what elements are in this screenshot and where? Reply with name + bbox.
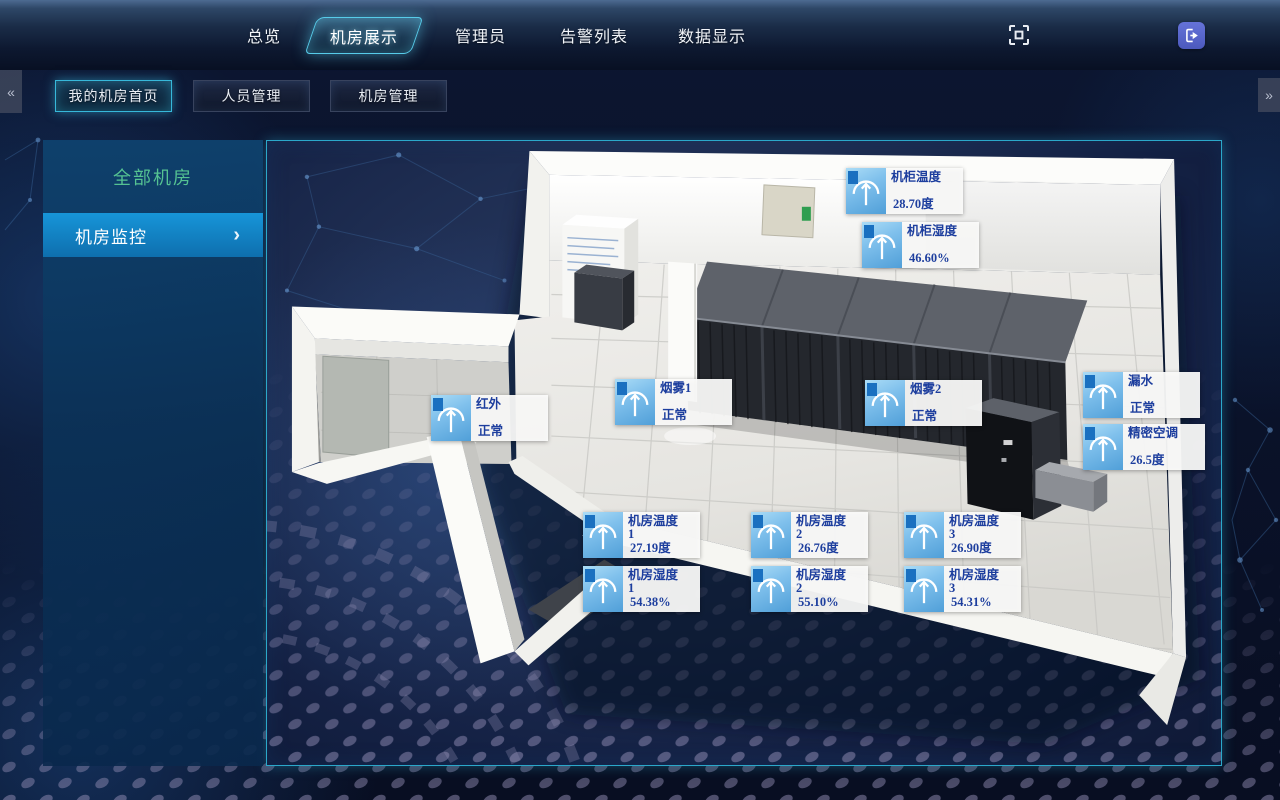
room-3d-viewport[interactable]: 机柜温度 28.70度 机柜湿度 46.60%: [266, 140, 1222, 766]
sensor-value: 正常: [476, 425, 546, 438]
sensor-text: 烟雾2 正常: [905, 380, 982, 426]
sensor-smoke-2[interactable]: 烟雾2 正常: [865, 380, 982, 426]
nav-item-overview[interactable]: 总览: [247, 23, 281, 47]
sensor-room-humidity-3[interactable]: 机房湿度3 54.31%: [904, 566, 1021, 612]
sensor-corner-square: [1085, 375, 1095, 388]
sensor-text: 机房温度1 27.19度: [623, 512, 700, 558]
sensor-value: 27.19度: [628, 542, 698, 555]
sensor-precision-ac[interactable]: 精密空调 26.5度: [1083, 424, 1205, 470]
sensor-name: 机柜湿度: [907, 225, 963, 238]
logout-button[interactable]: [1178, 22, 1205, 49]
sensor-room-humidity-2[interactable]: 机房湿度2 55.10%: [751, 566, 868, 612]
sensor-text: 机柜湿度 46.60%: [902, 222, 979, 268]
sensor-text: 机房湿度2 55.10%: [791, 566, 868, 612]
sensor-corner-square: [753, 515, 763, 528]
nav-item-alarm-list[interactable]: 告警列表: [560, 23, 628, 47]
top-nav: 总览 机房展示 管理员 告警列表 数据显示: [0, 0, 1280, 70]
sensor-corner-square: [433, 398, 443, 411]
sensor-name: 烟雾1: [660, 382, 716, 395]
sensor-name: 机柜温度: [891, 171, 947, 184]
sensor-smoke-1[interactable]: 烟雾1 正常: [615, 379, 732, 425]
sensor-cabinet-humidity[interactable]: 机柜湿度 46.60%: [862, 222, 979, 268]
tab-personnel-mgmt[interactable]: 人员管理: [193, 80, 310, 112]
tab-room-mgmt[interactable]: 机房管理: [330, 80, 447, 112]
sidebar-item-room-monitor[interactable]: 机房监控 ›: [43, 213, 263, 257]
sensor-corner-square: [617, 382, 627, 395]
sensor-name: 漏水: [1128, 375, 1184, 388]
tab-my-room-home[interactable]: 我的机房首页: [55, 80, 172, 112]
sensor-corner-square: [585, 515, 595, 528]
sensor-text: 烟雾1 正常: [655, 379, 732, 425]
sensor-corner-square: [864, 225, 874, 238]
sensor-name: 机房湿度3: [949, 569, 1005, 595]
sensor-corner-square: [753, 569, 763, 582]
sensor-value: 26.5度: [1128, 454, 1203, 467]
sensor-cabinet-temp[interactable]: 机柜温度 28.70度: [846, 168, 963, 214]
nav-item-room-display-label: 机房展示: [330, 23, 398, 47]
sensor-room-humidity-1[interactable]: 机房湿度1 54.38%: [583, 566, 700, 612]
sidebar: 全部机房 机房监控 ›: [43, 140, 263, 766]
fullscreen-icon[interactable]: [1007, 23, 1031, 47]
sensor-text: 红外 正常: [471, 395, 548, 441]
sensor-value: 正常: [910, 410, 980, 423]
sensor-value: 26.90度: [949, 542, 1019, 555]
sensor-text: 机房温度2 26.76度: [791, 512, 868, 558]
sensor-name: 机房湿度1: [628, 569, 684, 595]
sensor-text: 机房湿度3 54.31%: [944, 566, 1021, 612]
sensor-corner-square: [906, 569, 916, 582]
nav-item-room-display[interactable]: 机房展示: [305, 17, 424, 54]
logout-icon: [1182, 26, 1201, 45]
sensor-text: 机房湿度1 54.38%: [623, 566, 700, 612]
sensor-value: 55.10%: [796, 596, 866, 609]
sensor-room-temp-3[interactable]: 机房温度3 26.90度: [904, 512, 1021, 558]
sensor-corner-square: [906, 515, 916, 528]
sensor-corner-square: [848, 171, 858, 184]
sensor-name: 机房湿度2: [796, 569, 852, 595]
sensor-name: 精密空调: [1128, 427, 1184, 440]
sensor-text: 漏水 正常: [1123, 372, 1200, 418]
pager-prev-button[interactable]: «: [0, 70, 22, 113]
sensor-value: 正常: [1128, 402, 1198, 415]
sensor-value: 正常: [660, 409, 730, 422]
sensor-value: 46.60%: [907, 252, 977, 265]
sensor-corner-square: [1085, 427, 1095, 440]
sensor-corner-square: [585, 569, 595, 582]
pager-next-button[interactable]: »: [1258, 78, 1280, 112]
nav-item-data-display[interactable]: 数据显示: [678, 23, 746, 47]
sensor-text: 机柜温度 28.70度: [886, 168, 963, 214]
sidebar-item-label: 机房监控: [75, 223, 147, 248]
sensor-value: 54.38%: [628, 596, 698, 609]
app: 总览 机房展示 管理员 告警列表 数据显示: [0, 0, 1280, 800]
sensor-name: 机房温度2: [796, 515, 852, 541]
nav-right-actions: [1007, 22, 1280, 49]
sensor-water-leak[interactable]: 漏水 正常: [1083, 372, 1200, 418]
nav-item-admin[interactable]: 管理员: [455, 23, 506, 47]
sensor-infrared[interactable]: 红外 正常: [431, 395, 548, 441]
sensor-value: 28.70度: [891, 198, 961, 211]
sensor-value: 26.76度: [796, 542, 866, 555]
sensor-name: 机房温度1: [628, 515, 684, 541]
sensor-room-temp-1[interactable]: 机房温度1 27.19度: [583, 512, 700, 558]
sensor-name: 红外: [476, 398, 532, 411]
sensor-name: 烟雾2: [910, 383, 966, 396]
sensor-value: 54.31%: [949, 596, 1019, 609]
sensor-text: 精密空调 26.5度: [1123, 424, 1205, 470]
chevron-right-icon: ›: [233, 224, 241, 247]
sensor-name: 机房温度3: [949, 515, 1005, 541]
sensor-overlay: 机柜温度 28.70度 机柜湿度 46.60%: [267, 141, 1221, 765]
sensor-text: 机房温度3 26.90度: [944, 512, 1021, 558]
sidebar-title: 全部机房: [43, 140, 263, 213]
sensor-room-temp-2[interactable]: 机房温度2 26.76度: [751, 512, 868, 558]
sensor-corner-square: [867, 383, 877, 396]
